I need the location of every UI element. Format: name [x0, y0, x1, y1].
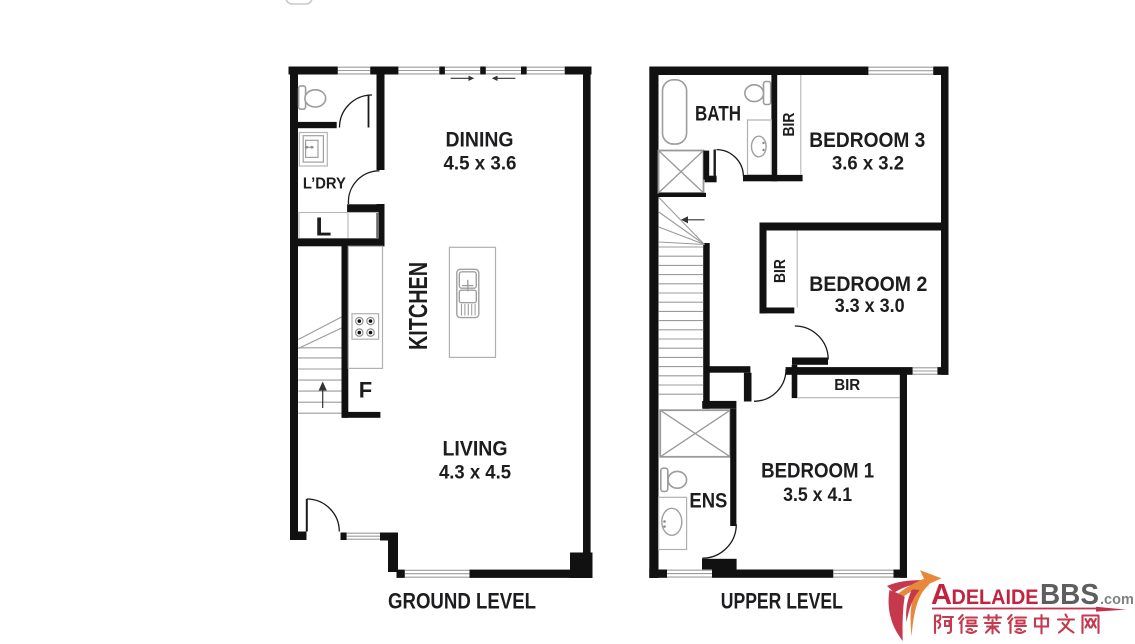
svg-text:BIR: BIR — [781, 112, 798, 136]
svg-text:L: L — [316, 212, 332, 242]
svg-text:L’DRY: L’DRY — [303, 175, 346, 192]
svg-text:A: A — [931, 579, 952, 611]
svg-text:DELAIDE: DELAIDE — [952, 585, 1039, 609]
svg-text:KITCHEN: KITCHEN — [403, 262, 433, 350]
svg-text:3.6 x 3.2: 3.6 x 3.2 — [832, 153, 904, 175]
svg-text:3.5 x 4.1: 3.5 x 4.1 — [783, 484, 852, 506]
svg-text:BIR: BIR — [772, 259, 789, 283]
svg-text:4.3 x 4.5: 4.3 x 4.5 — [439, 462, 511, 484]
svg-text:GROUND LEVEL: GROUND LEVEL — [388, 588, 536, 613]
svg-text:BATH: BATH — [695, 103, 741, 126]
svg-text:BIR: BIR — [834, 377, 860, 394]
svg-text:BEDROOM 3: BEDROOM 3 — [809, 129, 925, 152]
svg-text:UPPER LEVEL: UPPER LEVEL — [721, 588, 843, 613]
svg-text:F: F — [359, 378, 372, 403]
svg-text:BEDROOM 2: BEDROOM 2 — [809, 273, 927, 296]
svg-text:.com: .com — [1100, 592, 1134, 608]
svg-text:BBS: BBS — [1040, 579, 1099, 611]
svg-text:ENS: ENS — [689, 490, 727, 513]
svg-text:BEDROOM 1: BEDROOM 1 — [761, 460, 874, 483]
svg-text:LIVING: LIVING — [443, 438, 508, 461]
svg-text:3.3 x 3.0: 3.3 x 3.0 — [835, 295, 905, 317]
svg-text:DINING: DINING — [446, 129, 514, 152]
svg-text:4.5 x 3.6: 4.5 x 3.6 — [444, 153, 517, 175]
